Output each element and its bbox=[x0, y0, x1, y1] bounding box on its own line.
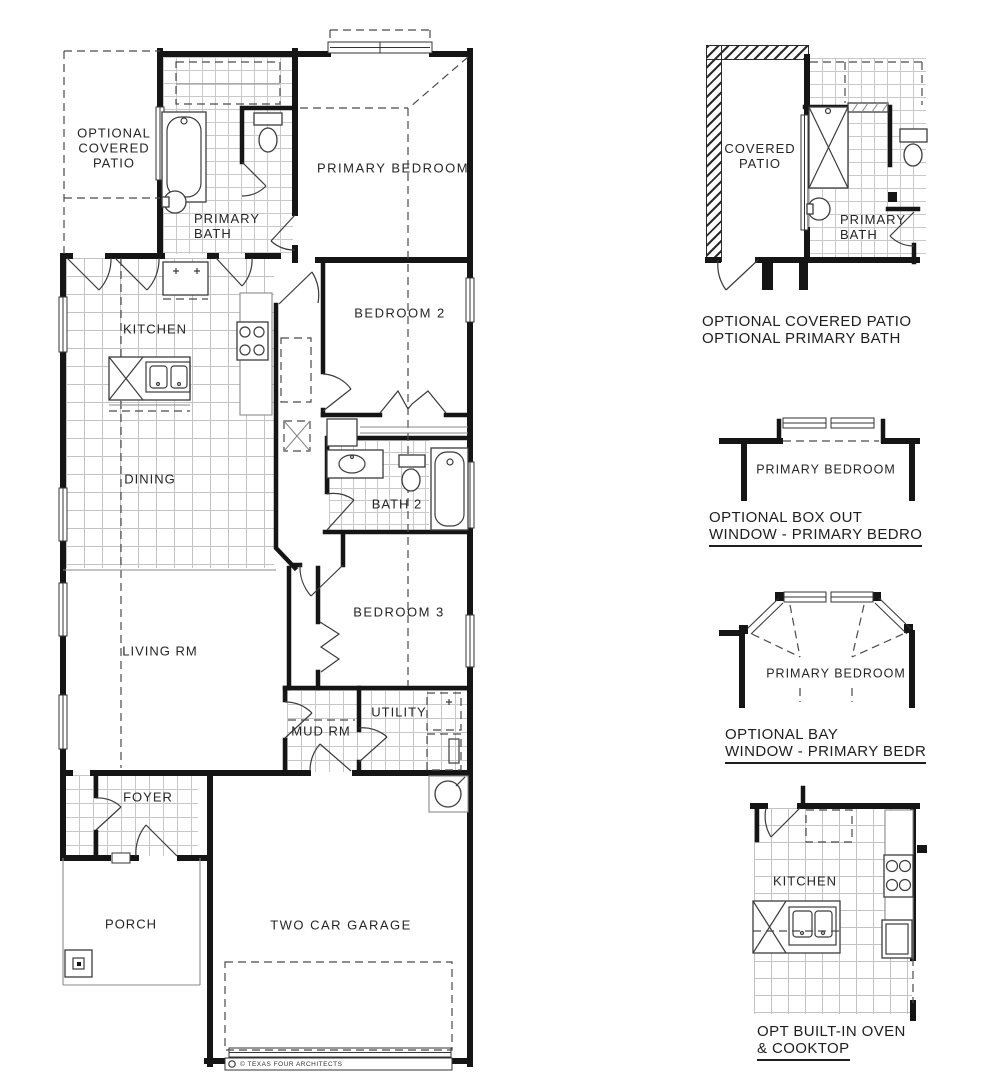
label-option-covered-patio: COVERED PATIO bbox=[724, 141, 795, 171]
label-kitchen: KITCHEN bbox=[123, 322, 187, 337]
bath2-tub bbox=[431, 448, 468, 530]
label-boxout-primary-bedroom: PRIMARY BEDROOM bbox=[756, 463, 896, 478]
label-dining: DINING bbox=[124, 472, 176, 487]
option-patio-bath-drawing bbox=[708, 57, 927, 290]
linen-cabinet bbox=[327, 419, 357, 446]
bath2-vanity bbox=[327, 450, 383, 478]
architect-credit: © TEXAS FOUR ARCHITECTS bbox=[240, 1060, 343, 1069]
option-bay-window-drawing bbox=[722, 592, 913, 705]
main-dashed-lines bbox=[63, 30, 468, 1050]
label-option-primary-bath: PRIMARY BATH bbox=[840, 212, 906, 242]
label-porch: PORCH bbox=[105, 917, 157, 932]
label-utility: UTILITY bbox=[371, 705, 426, 720]
option-box-out-drawing bbox=[722, 418, 917, 498]
label-mud-rm: MUD RM bbox=[291, 724, 350, 739]
bath2-toilet bbox=[399, 455, 425, 467]
caption-bay-window-option: OPTIONAL BAY WINDOW - PRIMARY BEDR bbox=[725, 726, 926, 764]
option-toilet bbox=[900, 129, 927, 142]
caption-oven-cooktop-option: OPT BUILT-IN OVEN & COOKTOP bbox=[757, 1023, 906, 1061]
label-option-kitchen: KITCHEN bbox=[773, 874, 837, 889]
label-bedroom-2: BEDROOM 2 bbox=[354, 306, 446, 321]
caption-box-out-window-option: OPTIONAL BOX OUT WINDOW - PRIMARY BEDRO bbox=[709, 509, 922, 547]
label-primary-bedroom: PRIMARY BEDROOM bbox=[317, 161, 469, 176]
option-window-sill bbox=[848, 103, 888, 112]
label-bath-2: BATH 2 bbox=[372, 497, 423, 512]
label-two-car-garage: TWO CAR GARAGE bbox=[270, 918, 412, 933]
label-optional-covered-patio: OPTIONAL COVERED PATIO bbox=[77, 126, 151, 171]
label-living-rm: LIVING RM bbox=[122, 644, 197, 659]
toilet-fixture bbox=[254, 113, 282, 125]
caption-patio-bath-option: OPTIONAL COVERED PATIO OPTIONAL PRIMARY … bbox=[702, 313, 911, 347]
label-foyer: FOYER bbox=[123, 790, 173, 805]
option-oven-cooktop-drawing bbox=[753, 788, 927, 1018]
fridge-fixture bbox=[163, 262, 208, 295]
floor-plan-sheet: OPTIONAL COVERED PATIO PRIMARY BATH PRIM… bbox=[0, 0, 995, 1080]
label-bay-primary-bedroom: PRIMARY BEDROOM bbox=[766, 667, 906, 682]
label-bedroom-3: BEDROOM 3 bbox=[353, 605, 445, 620]
label-primary-bath: PRIMARY BATH bbox=[194, 211, 260, 241]
main-exterior-walls bbox=[63, 51, 470, 1064]
